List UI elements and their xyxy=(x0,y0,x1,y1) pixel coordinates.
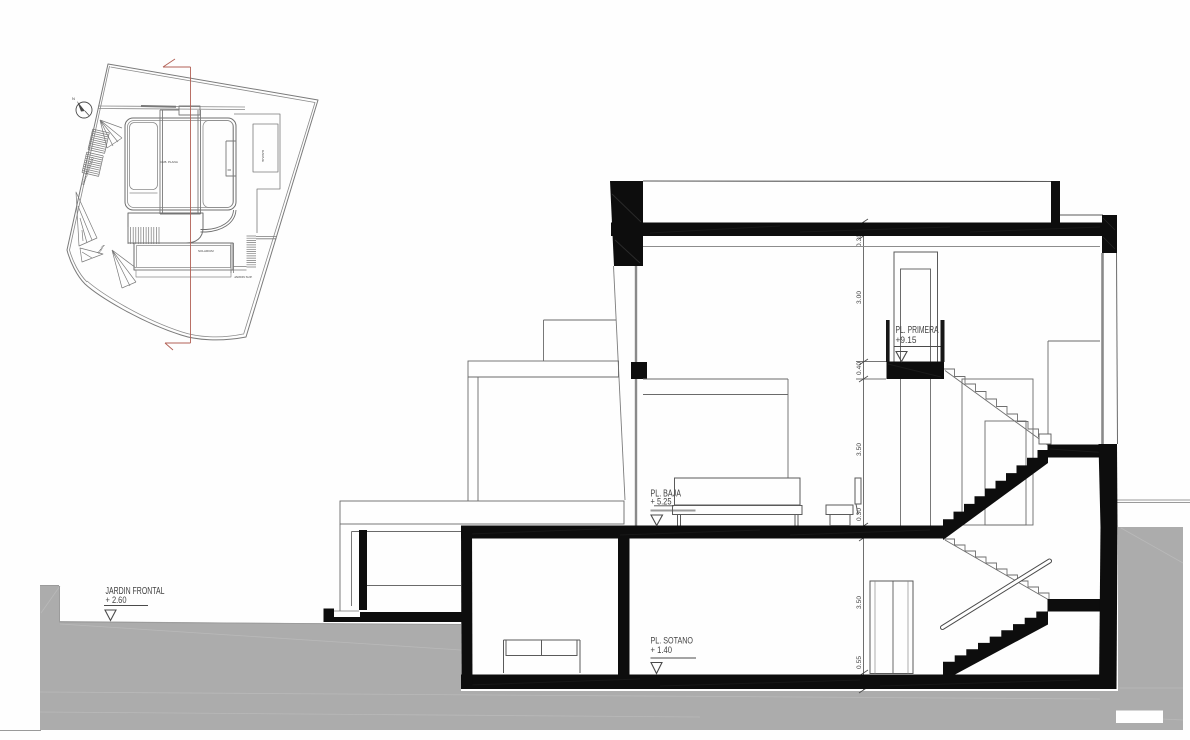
svg-text:JARDIN SUP.: JARDIN SUP. xyxy=(234,275,252,279)
svg-text:N: N xyxy=(72,96,75,101)
svg-text:3.50: 3.50 xyxy=(856,596,863,609)
svg-text:+9.15: +9.15 xyxy=(896,335,917,345)
svg-text:0.55: 0.55 xyxy=(856,656,863,669)
svg-text:+ 2.60: + 2.60 xyxy=(106,595,127,605)
svg-text:GARAJE: GARAJE xyxy=(261,150,265,162)
svg-text:3.00: 3.00 xyxy=(856,291,863,304)
svg-text:+ 5.25: + 5.25 xyxy=(651,497,672,507)
svg-text:SOLARIUM: SOLARIUM xyxy=(198,249,214,253)
svg-text:+ 1.40: + 1.40 xyxy=(651,645,673,655)
svg-text:3.50: 3.50 xyxy=(856,443,863,456)
svg-text:0.40: 0.40 xyxy=(856,362,863,375)
svg-text:CUB. PLANA: CUB. PLANA xyxy=(160,160,178,164)
